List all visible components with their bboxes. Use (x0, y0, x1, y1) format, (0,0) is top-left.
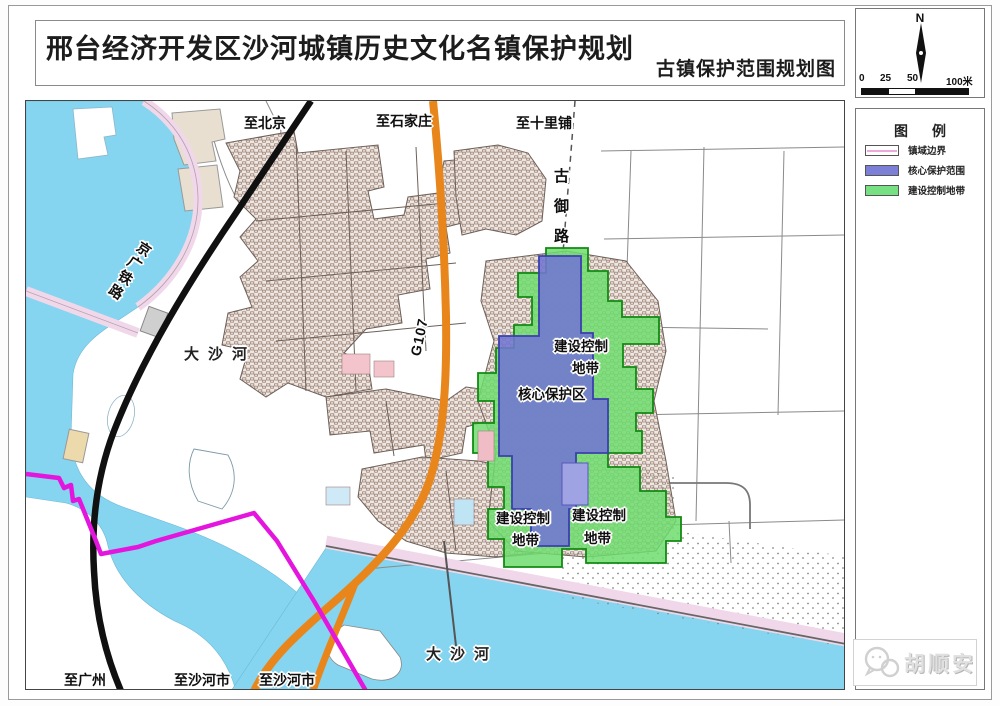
core-zone-light-patch (562, 463, 588, 505)
map-svg (26, 101, 845, 690)
scale-bar-ticks: 0 25 50 100米 (856, 73, 986, 85)
label-to-shahe-1: 至沙河市 (174, 670, 230, 690)
label-dashahe-west: 大沙河 (184, 343, 256, 364)
scale-tick: 25 (880, 73, 891, 84)
watermark-text: 胡顺安 (904, 648, 976, 678)
legend: 图 例 镇域边界 核心保护范围 建设控制地带 (855, 108, 985, 690)
page-subtitle: 古镇保护范围规划图 (656, 54, 836, 81)
guyulu-char: 御 (554, 195, 569, 216)
title-block: 邢台经济开发区沙河城镇历史文化名镇保护规划 古镇保护范围规划图 (35, 20, 845, 86)
legend-item-label: 镇域边界 (908, 143, 946, 157)
label-guyulu: 古 御 路 (554, 165, 569, 246)
river-island (189, 449, 234, 509)
guyulu-char: 古 (554, 165, 569, 186)
label-to-guangzhou: 至广州 (64, 670, 106, 690)
label-ctrl-zone-br-1: 建设控制 (572, 504, 626, 524)
label-ctrl-zone-top-1: 建设控制 (554, 335, 608, 355)
legend-item-construction-control: 建设控制地带 (865, 183, 965, 197)
scale-bar (861, 88, 969, 95)
scale-tick: 0 (859, 73, 865, 84)
label-ctrl-zone-bl-1: 建设控制 (496, 507, 550, 527)
label-core-zone: 核心保护区 (518, 383, 586, 403)
north-scale-panel: N 0 25 50 100米 (855, 8, 985, 98)
label-to-beijing: 至北京 (244, 113, 286, 133)
legend-title: 图 例 (884, 121, 956, 141)
label-ctrl-zone-top-2: 地带 (572, 357, 599, 377)
town-boundary-swatch (865, 145, 899, 156)
page-title: 邢台经济开发区沙河城镇历史文化名镇保护规划 (46, 27, 634, 66)
construction-control-swatch (865, 185, 899, 196)
legend-item-label: 核心保护范围 (908, 163, 965, 177)
legend-item-core-protection: 核心保护范围 (865, 163, 965, 177)
label-ctrl-zone-br-2: 地带 (584, 527, 611, 547)
scale-tick: 100米 (946, 73, 973, 88)
label-to-shilipu: 至十里铺 (516, 113, 572, 133)
guyulu-char: 路 (554, 225, 569, 246)
wechat-icon (860, 643, 904, 683)
core-protection-swatch (865, 165, 899, 176)
label-to-shijiazhuang: 至石家庄 (376, 111, 432, 131)
watermark: 胡顺安 (853, 639, 977, 686)
label-ctrl-zone-bl-2: 地带 (512, 529, 539, 549)
label-dashahe-south: 大沙河 (426, 643, 498, 664)
legend-item-label: 建设控制地带 (908, 183, 965, 197)
map-canvas: 至北京 至石家庄 至十里铺 京广铁路 大沙河 G107 古 御 路 建设控制 地… (25, 100, 845, 690)
label-to-shahe-2: 至沙河市 (259, 670, 315, 690)
scale-tick: 50 (907, 73, 918, 84)
legend-item-town-boundary: 镇域边界 (865, 143, 946, 157)
